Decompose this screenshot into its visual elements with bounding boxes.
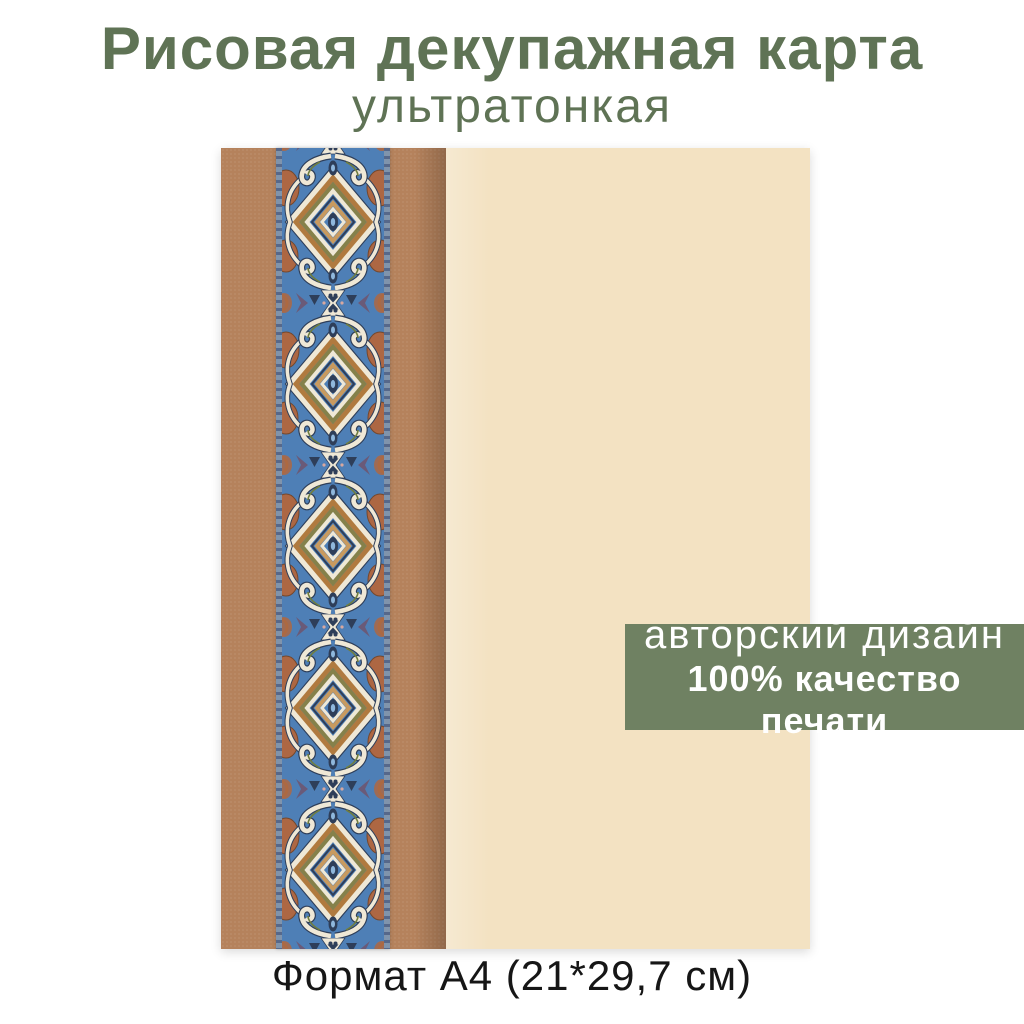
format-caption: Формат А4 (21*29,7 см) — [0, 952, 1024, 1000]
ornament-border-strip — [276, 148, 390, 949]
paper-cream-panel — [446, 148, 810, 949]
badge-quality-label: 100% качество печати — [625, 658, 1024, 742]
quality-badge: авторский дизайн 100% качество печати — [625, 624, 1024, 730]
ornament-border-pattern — [276, 148, 390, 949]
paper-tan-panel — [221, 148, 446, 949]
page-title: Рисовая декупажная карта — [0, 18, 1024, 80]
header: Рисовая декупажная карта ультратонкая — [0, 18, 1024, 132]
paper-sheet-mockup — [221, 148, 810, 949]
footer: Формат А4 (21*29,7 см) — [0, 952, 1024, 1000]
page-subtitle: ультратонкая — [0, 82, 1024, 132]
badge-design-label: авторский дизайн — [644, 612, 1005, 658]
